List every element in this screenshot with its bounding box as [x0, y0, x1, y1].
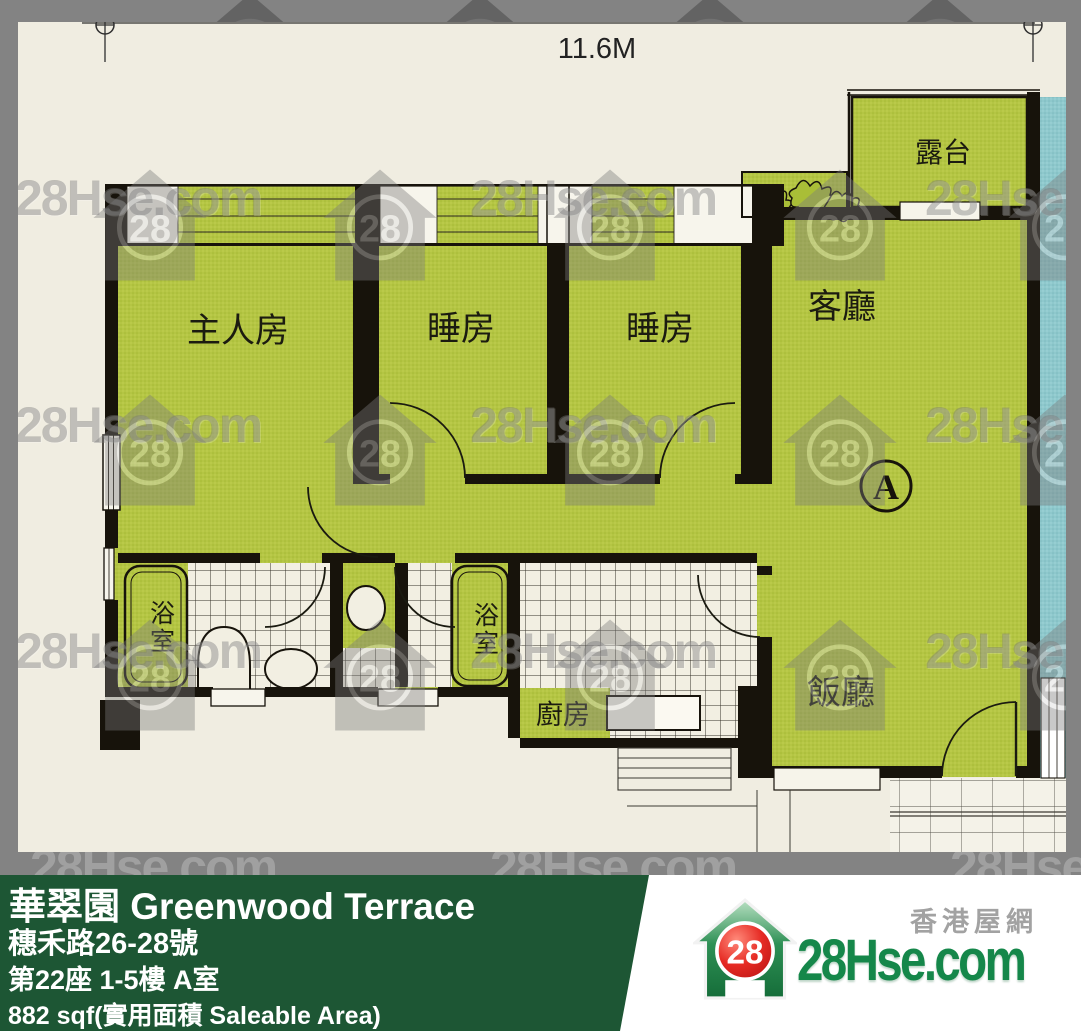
- bay-window-band: [105, 184, 784, 246]
- toilet-2: [347, 586, 385, 630]
- site-logo-number: 28: [726, 935, 763, 972]
- banner-green-panel: 華翠園 Greenwood Terrace 穗禾路26-28號 第22座 1-5…: [0, 875, 660, 1031]
- corridor-tiles: [890, 778, 1066, 852]
- page: 2828282828Hse.com28Hse.com28Hse.com: [0, 0, 1081, 1031]
- estate-address: 穗禾路26-28號: [8, 920, 198, 962]
- site-logo-tagline: 香港屋網: [910, 900, 1038, 939]
- dimension-label: 11.6M: [558, 33, 636, 65]
- bathroom-2-label: 浴室: [471, 602, 499, 658]
- toilet-1: [198, 627, 250, 690]
- unit-marker-letter: A: [873, 467, 899, 507]
- floorplan-sheet: 11.6M 主人房 睡房 睡房 客廳 飯廳 露台 廚房 浴室 浴室 A 28Hs…: [18, 22, 1066, 852]
- bathroom-1-label: 浴室: [147, 600, 175, 656]
- floor-plan: 11.6M 主人房 睡房 睡房 客廳 飯廳 露台 廚房 浴室 浴室 A: [18, 22, 1066, 852]
- balcony-label: 露台: [915, 137, 971, 169]
- site-logo-house-icon: 28: [693, 897, 797, 1001]
- living-room-label: 客廳: [808, 288, 876, 326]
- master-bedroom-label: 主人房: [187, 312, 289, 350]
- info-banner: 華翠園 Greenwood Terrace 穗禾路26-28號 第22座 1-5…: [0, 875, 1081, 1031]
- adjacent-unit: [1040, 97, 1066, 778]
- block-floor-unit: 第22座 1-5樓 A室: [8, 958, 220, 997]
- exterior-patch: [105, 697, 520, 748]
- bedroom-2-label: 睡房: [626, 310, 694, 348]
- kitchen-counter: [607, 696, 700, 730]
- kitchen-label: 廚房: [536, 700, 590, 730]
- dining-room-label: 飯廳: [807, 674, 875, 712]
- sink-1: [265, 649, 317, 689]
- bedroom-1-label: 睡房: [427, 310, 495, 348]
- saleable-area: 882 sqf(實用面積 Saleable Area): [8, 996, 381, 1031]
